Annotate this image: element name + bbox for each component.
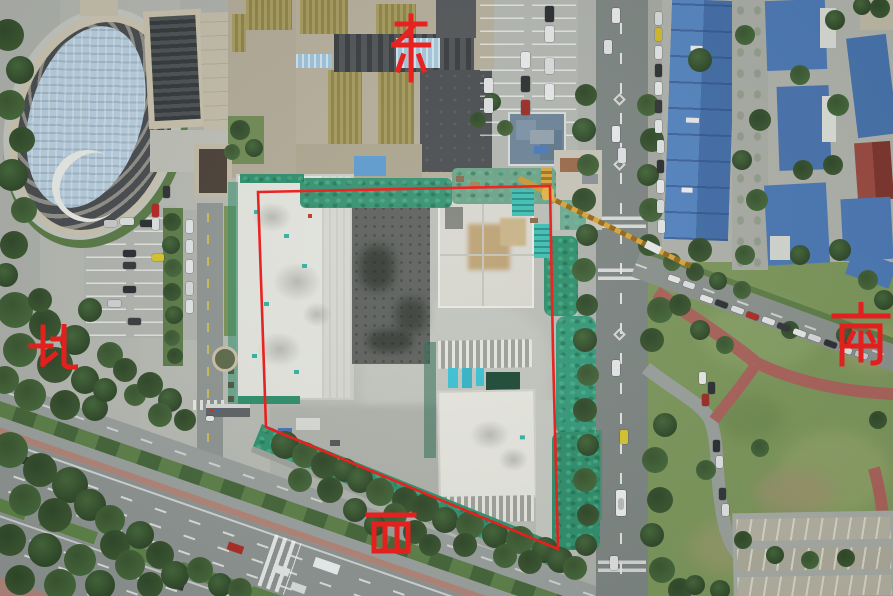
photo-vignette — [0, 0, 893, 596]
aerial-photo-canvas: 东北南西 — [0, 0, 893, 596]
